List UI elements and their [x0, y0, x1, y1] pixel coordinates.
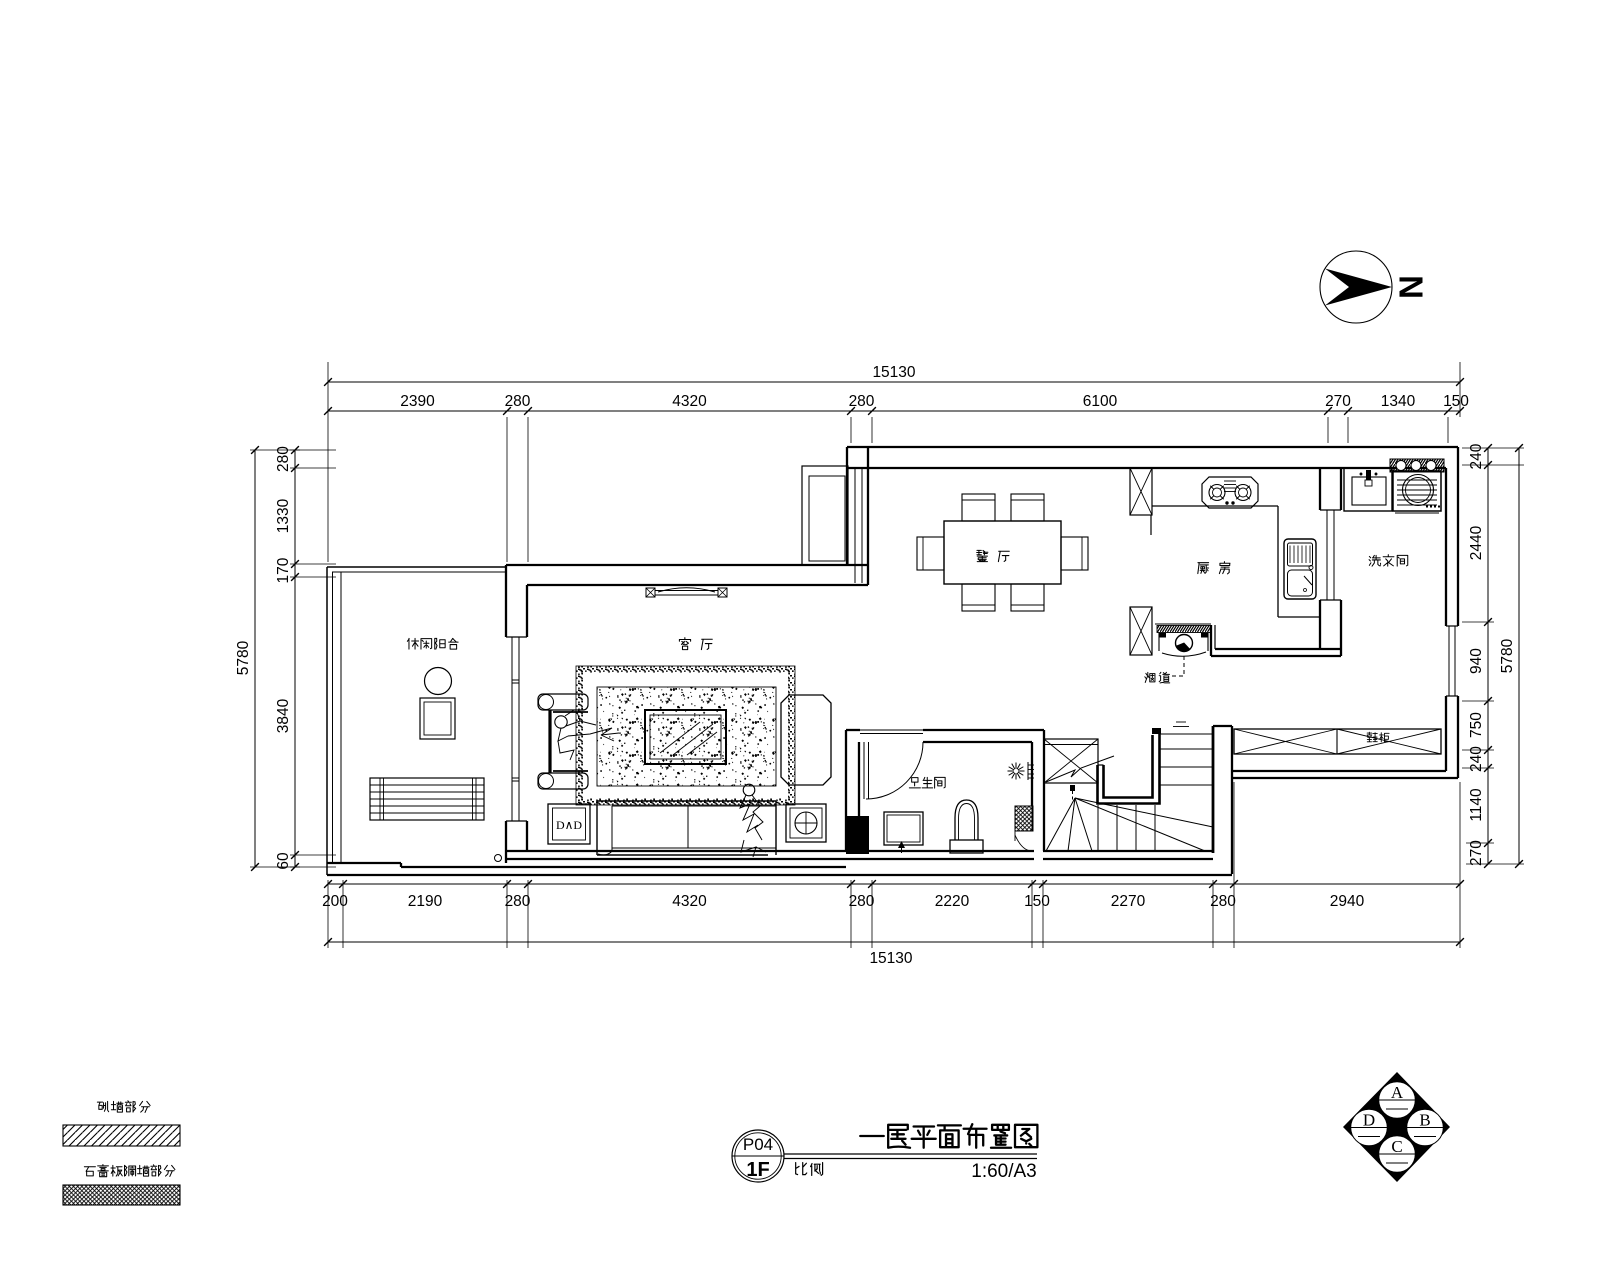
svg-text:1140: 1140 — [1468, 788, 1485, 822]
svg-text:B: B — [1419, 1111, 1430, 1130]
svg-text:2390: 2390 — [400, 393, 435, 410]
svg-text:280: 280 — [849, 393, 875, 410]
svg-text:150: 150 — [1024, 893, 1050, 910]
svg-text:4320: 4320 — [672, 393, 707, 410]
svg-text:200: 200 — [322, 893, 348, 910]
svg-text:3840: 3840 — [275, 698, 292, 733]
svg-text:5780: 5780 — [235, 640, 252, 675]
svg-text:A: A — [1391, 1083, 1404, 1102]
svg-text:2190: 2190 — [408, 893, 443, 910]
svg-text:170: 170 — [275, 557, 292, 583]
svg-text:4320: 4320 — [672, 893, 707, 910]
svg-text:C: C — [1391, 1137, 1402, 1156]
svg-text:150: 150 — [1443, 393, 1469, 410]
svg-text:240: 240 — [1468, 443, 1485, 469]
svg-text:1:60/A3: 1:60/A3 — [971, 1161, 1037, 1182]
svg-text:2440: 2440 — [1468, 525, 1485, 560]
svg-text:2940: 2940 — [1330, 893, 1365, 910]
svg-text:1340: 1340 — [1381, 393, 1416, 410]
svg-text:280: 280 — [505, 393, 531, 410]
svg-text:280: 280 — [849, 893, 875, 910]
svg-text:270: 270 — [1325, 393, 1351, 410]
svg-text:750: 750 — [1468, 712, 1485, 738]
svg-text:2220: 2220 — [935, 893, 970, 910]
svg-text:280: 280 — [1210, 893, 1236, 910]
svg-text:6100: 6100 — [1083, 393, 1118, 410]
svg-text:15130: 15130 — [872, 364, 915, 381]
svg-text:1330: 1330 — [275, 498, 292, 533]
svg-text:2270: 2270 — [1111, 893, 1146, 910]
svg-text:N: N — [1393, 275, 1430, 299]
svg-text:D: D — [1363, 1111, 1375, 1130]
svg-text:1F: 1F — [746, 1159, 769, 1181]
svg-text:280: 280 — [505, 893, 531, 910]
svg-text:5780: 5780 — [1499, 638, 1516, 673]
svg-text:P04: P04 — [743, 1135, 773, 1154]
svg-text:940: 940 — [1468, 648, 1485, 674]
svg-text:270: 270 — [1468, 840, 1485, 866]
svg-text:15130: 15130 — [869, 950, 912, 967]
svg-text:D∧D: D∧D — [556, 818, 582, 832]
